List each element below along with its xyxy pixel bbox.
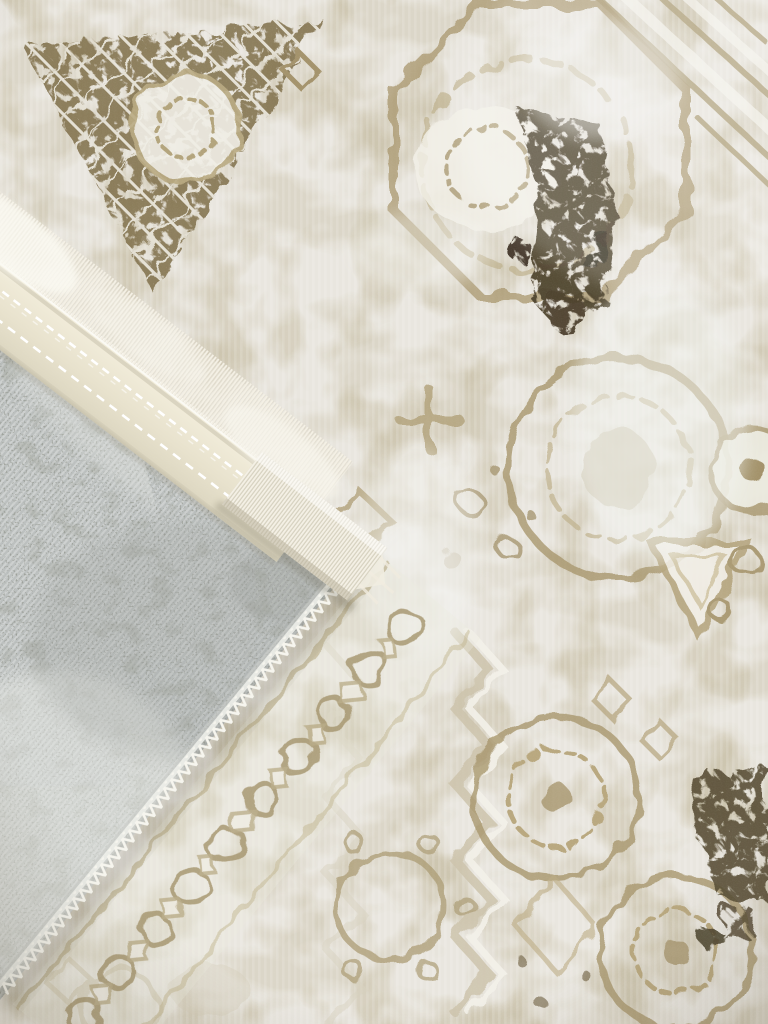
rug-photo-svg — [0, 0, 768, 1024]
photo-lighting — [0, 0, 768, 1024]
photo-grain — [0, 0, 768, 1024]
rug-photo — [0, 0, 768, 1024]
